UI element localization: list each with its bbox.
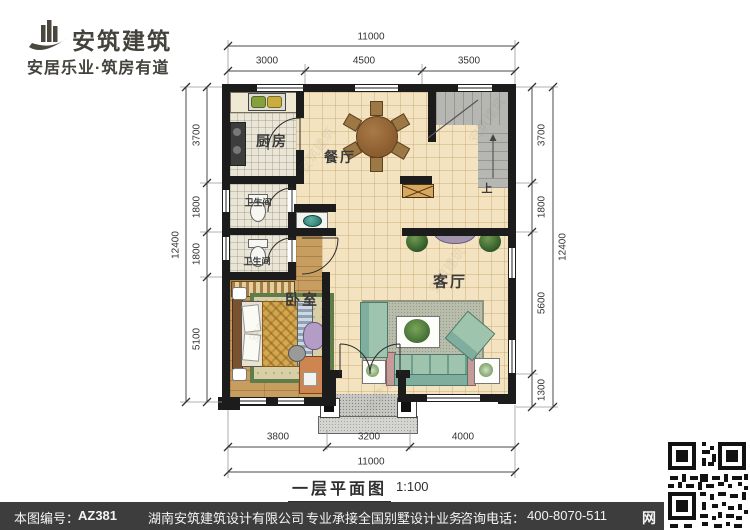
wall-basin-north [294,204,336,212]
dim-left-seg-3: 1800 [192,243,203,265]
label-dining: 餐厅 [324,147,356,167]
qr-code [664,438,750,530]
label-bathroom-2: 卫生间 [243,255,270,268]
footer-slogan: 专业承接全国别墅设计业务 [306,508,462,527]
burner-1 [233,128,241,136]
dim-bottom-seg-2: 3200 [358,432,380,443]
window-living-east-2 [508,340,516,373]
footer-phone-label: 咨询电话： [460,508,525,527]
dim-right-seg-4: 1300 [537,379,548,401]
dim-top-seg-1: 3000 [256,56,278,67]
label-bedroom: 卧室 [285,289,319,310]
window-stairs [458,84,492,92]
desk-chair [288,345,306,362]
dim-left-seg-4: 5100 [192,328,203,350]
label-kitchen: 厨房 [256,131,288,151]
nightstand-1 [232,287,247,300]
desk-paper [303,372,317,386]
wall-basin-south [294,228,336,236]
sink-bowl-left [251,96,266,108]
wall-below-stairs [400,176,432,184]
porch-column-right [401,402,411,412]
nightstand-2 [232,368,247,381]
footer-bar: 本图编号： AZ381 湖南安筑建筑设计有限公司 专业承接全国别墅设计业务 咨询… [0,502,750,530]
wall-stairs-west [428,84,436,142]
stairs-upper-flight [436,92,508,125]
wall-kitchen-south [222,176,304,184]
label-stairs-up: 上 [482,180,493,196]
side-table-plant-left [366,364,379,377]
window-living-east-1 [508,248,516,278]
wall-bath-divider [222,228,296,235]
footer-company: 湖南安筑建筑设计有限公司 [148,508,304,527]
bedroom-entry-floor [296,236,322,280]
footer-site-badge: 网 [642,508,656,528]
dim-top-seg-2: 4500 [353,56,375,67]
corner-column-sw [218,397,240,410]
side-table-plant-right [479,363,493,377]
wall-bedroom-east [322,272,330,397]
dim-top-seg-3: 3500 [458,56,480,67]
dining-chair [370,101,383,116]
dim-left-total: 12400 [171,231,182,259]
plan-title: 一层平面图 [288,475,391,503]
hall-cabinet [402,184,434,198]
dim-right-total: 12400 [558,233,569,261]
dim-left-seg-2: 1800 [192,196,203,218]
dim-bottom-seg-1: 3800 [267,432,289,443]
brand-name: 安筑建筑 [72,22,172,56]
window-bath1 [222,190,230,212]
window-bedroom-1 [240,397,266,405]
pillow-2 [242,333,261,361]
pillow-1 [242,304,262,333]
wall-bedroom-north [222,272,296,280]
plan-scale: 1:100 [396,479,429,494]
corner-column-se [498,394,516,404]
dim-bottom-total: 11000 [357,457,384,468]
wall-tv [402,228,508,236]
wall-entry-right-return [398,370,406,398]
window-dining [355,84,398,92]
dining-chair [370,157,383,172]
washbasin [303,215,322,227]
label-bathroom-1: 卫生间 [244,196,271,209]
coffee-table-plant [404,319,430,343]
label-living: 客厅 [433,271,467,292]
footer-serial: AZ381 [78,508,117,523]
brand-tagline: 安居乐业·筑房有道 [27,54,169,78]
dim-right-seg-3: 5600 [537,292,548,314]
window-living-south [427,394,480,402]
wall-bath-east-a [288,184,296,190]
dim-left-seg-1: 3700 [192,124,203,146]
footer-phone: 400-8070-511 [527,508,607,523]
footer-serial-label: 本图编号： [14,508,79,527]
dim-bottom-seg-3: 4000 [452,432,474,443]
logo-building-icon [26,16,70,56]
window-kitchen [257,84,303,92]
dim-right-seg-1: 3700 [537,124,548,146]
window-bath2 [222,237,230,260]
sink-bowl-right [267,96,282,108]
sofa-chaise-left [360,302,388,358]
dim-top-total: 11000 [357,32,384,43]
stairs-lower-flight [478,125,508,188]
dim-right-seg-2: 1800 [537,196,548,218]
floor-plan-sheet: 安筑建筑 安居乐业·筑房有道 [0,0,750,530]
window-bedroom-2 [278,397,304,405]
burner-2 [233,146,241,154]
